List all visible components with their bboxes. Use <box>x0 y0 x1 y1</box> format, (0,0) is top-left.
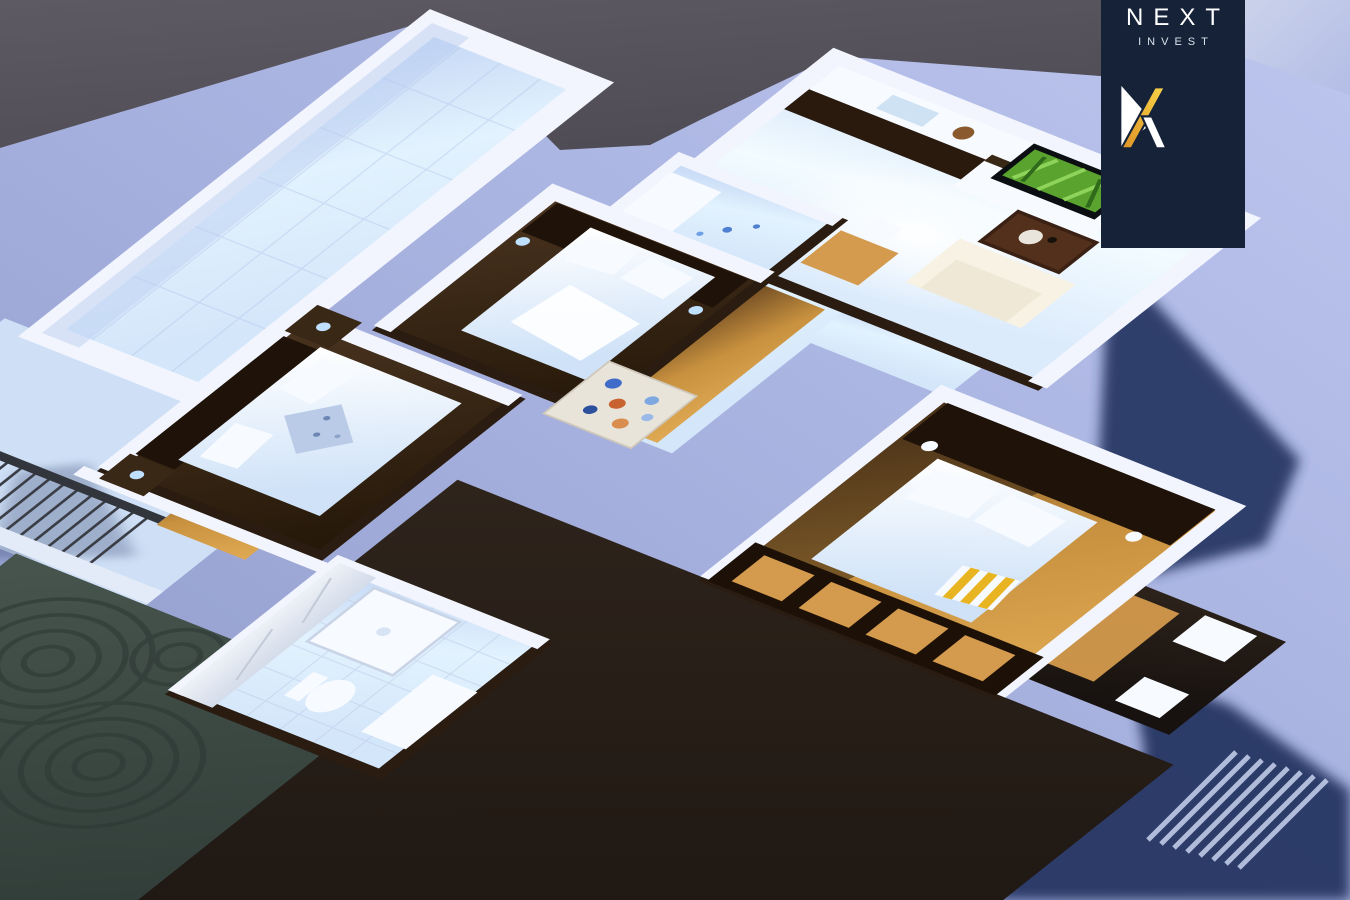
floorplan-3d-render: NEXT INVEST <box>0 0 1350 900</box>
brand-name: NEXT <box>1116 6 1230 30</box>
n-x-monogram-icon <box>1101 72 1181 168</box>
brand-subtitle: INVEST <box>1132 37 1214 48</box>
brand-watermark: NEXT INVEST <box>1101 0 1245 248</box>
